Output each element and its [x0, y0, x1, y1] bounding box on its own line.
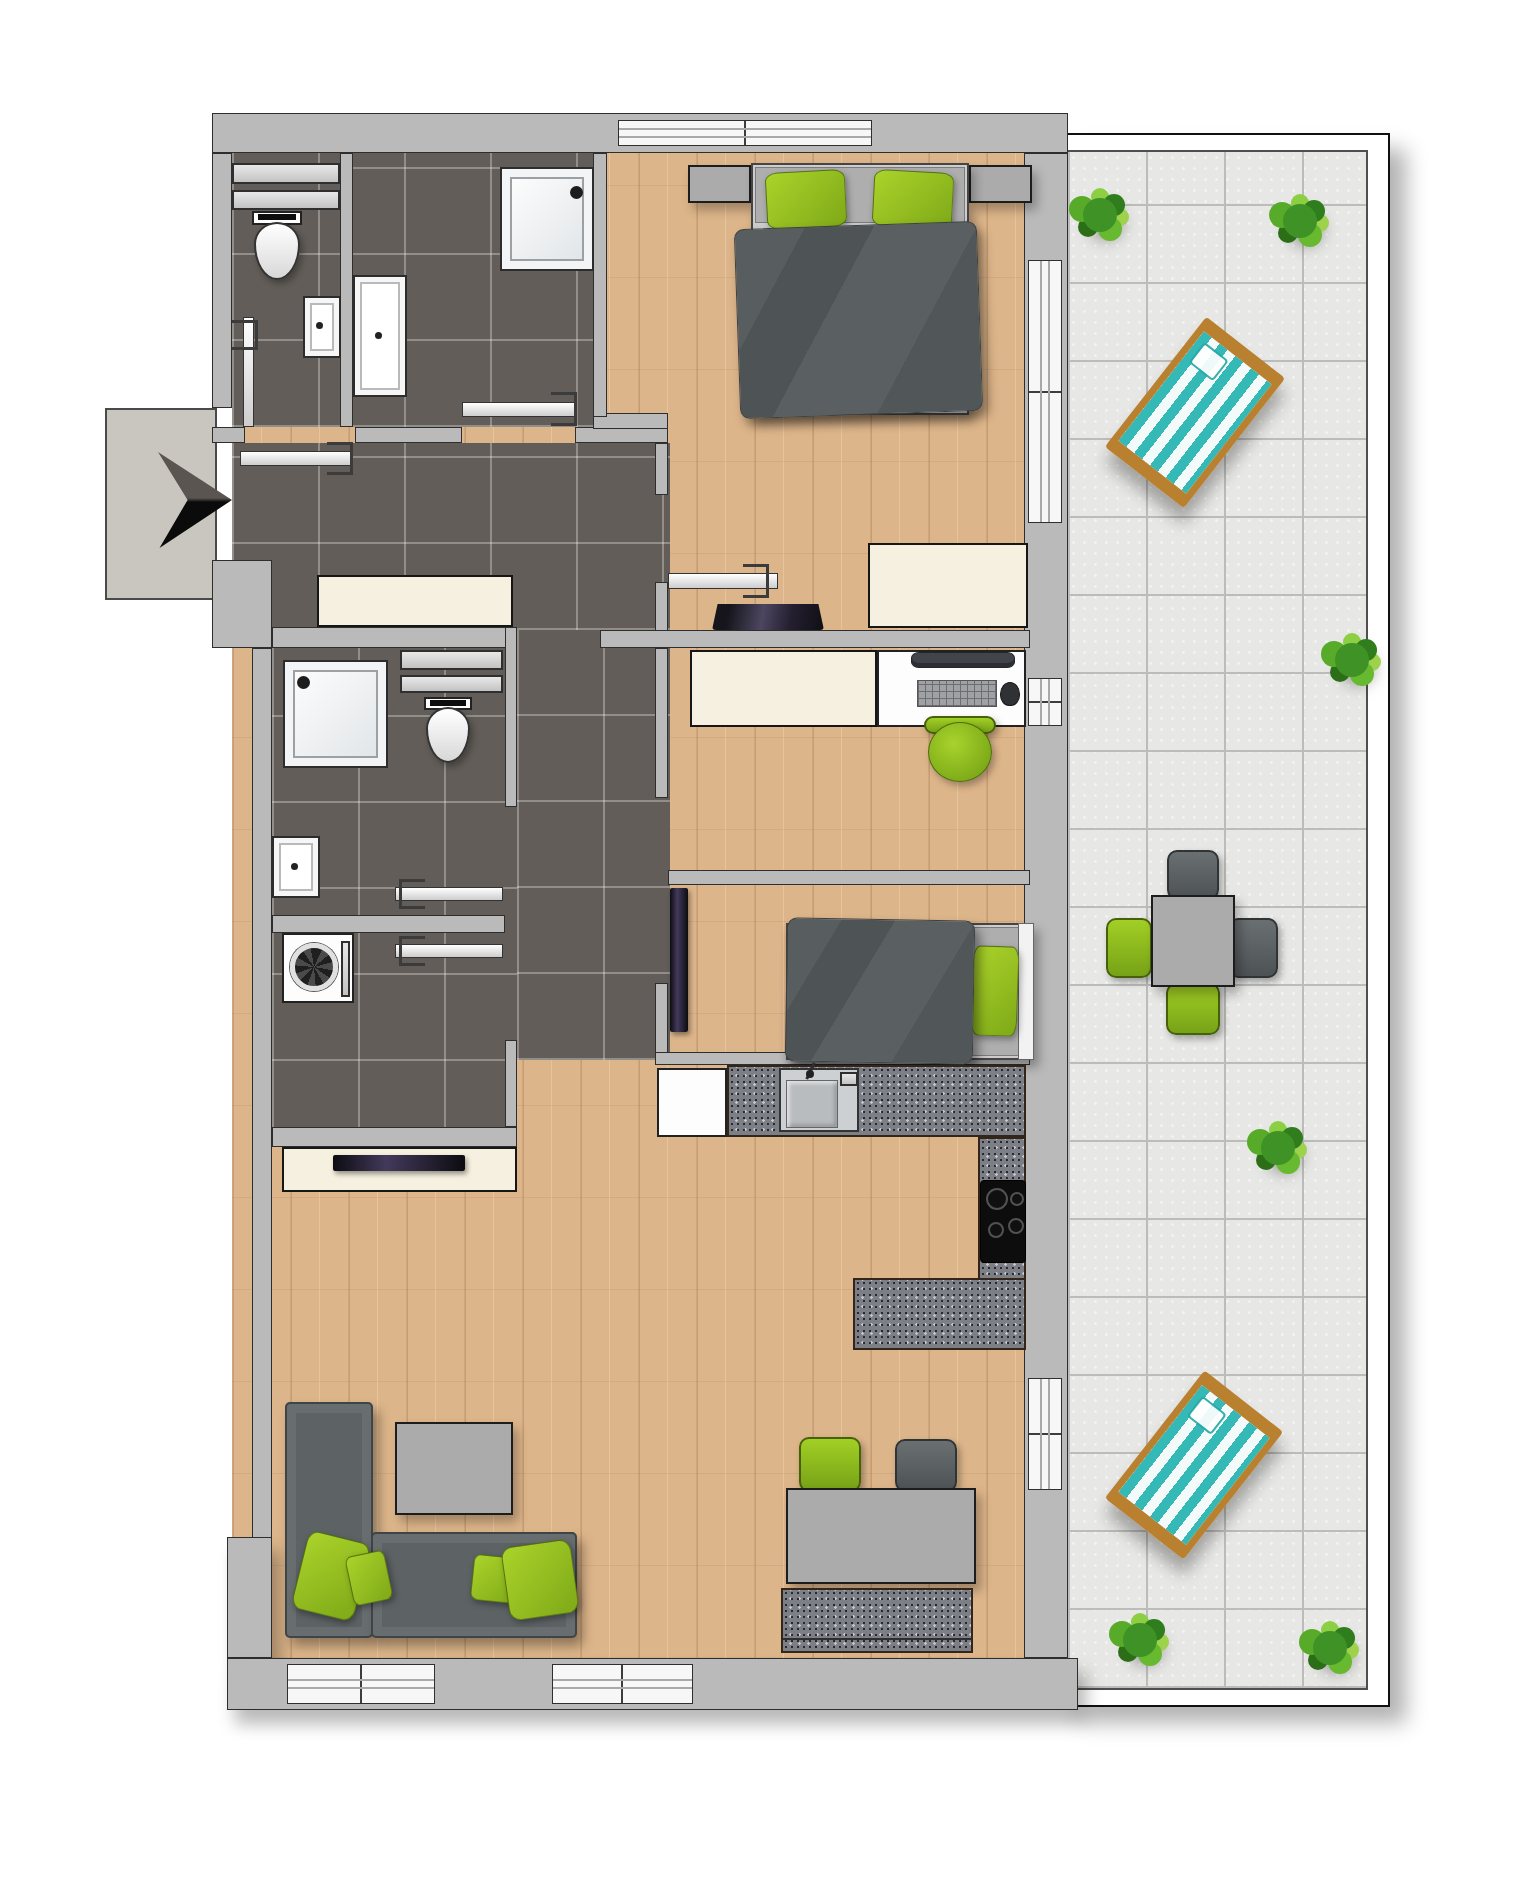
wall-under-wc-right: [355, 427, 462, 443]
wall-under-bath: [575, 427, 668, 443]
coffee-table: [395, 1422, 513, 1515]
bed-double-pillow-left: [765, 169, 848, 230]
bedroom-sideboard: [868, 543, 1028, 628]
wc-sink-drain: [316, 322, 323, 329]
bed-single-pillow: [970, 945, 1019, 1037]
window-office: [1028, 678, 1062, 726]
dining-bench: [781, 1588, 973, 1653]
dining-bench-line: [783, 1638, 971, 1640]
door-wc-bracket: [232, 320, 258, 350]
wall-bath2-right: [505, 627, 517, 807]
wall-office-kids-divider: [668, 870, 1030, 885]
wc-shelf-1: [232, 163, 340, 184]
hob-burner-3: [988, 1222, 1004, 1238]
bed-double-nightstand-left: [688, 165, 751, 203]
wall-hall-south: [600, 630, 1030, 648]
floor-plan: [0, 0, 1538, 1888]
bath2-toilet-tank-lid: [430, 700, 466, 706]
washing-machine-panel: [341, 941, 350, 997]
bed-double-duvet: [734, 221, 983, 419]
terrace-chair-top: [1167, 850, 1219, 900]
hall-sideboard: [317, 575, 513, 627]
window-terrace-slider: [1028, 260, 1062, 523]
kitchen-peninsula: [853, 1278, 1026, 1350]
door-bath2-bracket: [399, 879, 425, 909]
kitchen-fridge: [657, 1068, 727, 1137]
bath1-shower: [500, 167, 594, 271]
wall-bath2-top: [272, 627, 513, 648]
terrace-chair-right: [1228, 918, 1278, 978]
wc-toilet-tank-lid: [258, 214, 296, 220]
bath2-shower: [283, 660, 388, 768]
door-laundry-bracket: [399, 936, 425, 966]
wall-bath2-bottom: [272, 915, 505, 933]
bed-single-duvet: [785, 917, 975, 1064]
office-monitor: [911, 652, 1015, 668]
bed-single-headboard: [1018, 923, 1034, 1060]
plant-terrace-mid-right: [1335, 643, 1369, 677]
plant-terrace-top-left: [1083, 198, 1117, 232]
door-bath1-bracket: [551, 392, 577, 426]
door-entrance-bracket: [327, 442, 353, 475]
window-dining: [1028, 1378, 1062, 1490]
wall-bath-bed-divider: [593, 153, 607, 417]
bath2-shelf-1: [400, 650, 503, 670]
wall-bedroom-left-a: [655, 443, 668, 495]
wc-shelf-2: [232, 190, 340, 210]
terrace-table: [1151, 895, 1235, 987]
kitchen-soap-dish: [840, 1072, 858, 1086]
office-keyboard: [917, 680, 997, 707]
door-bedroom-bracket: [743, 564, 769, 598]
terrace-chair-left: [1106, 918, 1152, 978]
wall-entrance-block: [212, 560, 272, 648]
bed-double-pillow-right: [872, 169, 955, 230]
plant-terrace-top-right: [1283, 204, 1317, 238]
hob-burner-1: [986, 1188, 1008, 1210]
living-tv: [333, 1155, 465, 1171]
bath1-shower-drain: [570, 186, 583, 199]
window-top-bedroom: [618, 120, 872, 146]
plant-terrace-bottom-right: [1313, 1631, 1347, 1665]
bath2-shower-drain: [297, 676, 310, 689]
kitchen-faucet-base: [806, 1070, 814, 1078]
window-living-left: [287, 1664, 435, 1704]
office-chair-seat: [928, 722, 992, 782]
wall-left-upper: [212, 153, 232, 408]
bath2-sink-drain: [291, 863, 298, 870]
dining-chair-gray: [895, 1439, 957, 1492]
terrace-chair-bottom: [1166, 983, 1220, 1035]
wall-laundry-bottom: [272, 1127, 517, 1147]
wall-laundry-right: [505, 1040, 517, 1127]
wall-left-pillar: [227, 1537, 272, 1658]
wall-wc-bath-divider: [340, 153, 353, 427]
wall-under-wc-left: [212, 427, 245, 443]
plant-terrace-lower-right: [1261, 1131, 1295, 1165]
office-mouse: [1000, 682, 1020, 706]
bed-double-nightstand-right: [969, 165, 1032, 203]
dining-table: [786, 1488, 976, 1584]
washing-machine-drum: [290, 943, 338, 991]
wall-left-main: [252, 648, 272, 1658]
tiles-corridor: [517, 630, 670, 1060]
hob-burner-4: [1008, 1218, 1024, 1234]
office-sideboard: [690, 650, 877, 727]
dining-chair-green: [799, 1437, 861, 1492]
wall-office-left-a: [655, 648, 668, 798]
kitchen-counter-top: [727, 1065, 1026, 1137]
bedroom-laptop: [712, 604, 824, 630]
sofa-pillow-4: [500, 1538, 580, 1621]
hob-burner-2: [1010, 1192, 1024, 1206]
window-living-right: [552, 1664, 693, 1704]
kids-tv: [670, 888, 688, 1032]
bath1-sink-drain: [375, 332, 382, 339]
kitchen-sink-basin: [786, 1080, 838, 1128]
bath2-shelf-2: [400, 675, 503, 693]
plant-terrace-bottom-left: [1123, 1623, 1157, 1657]
